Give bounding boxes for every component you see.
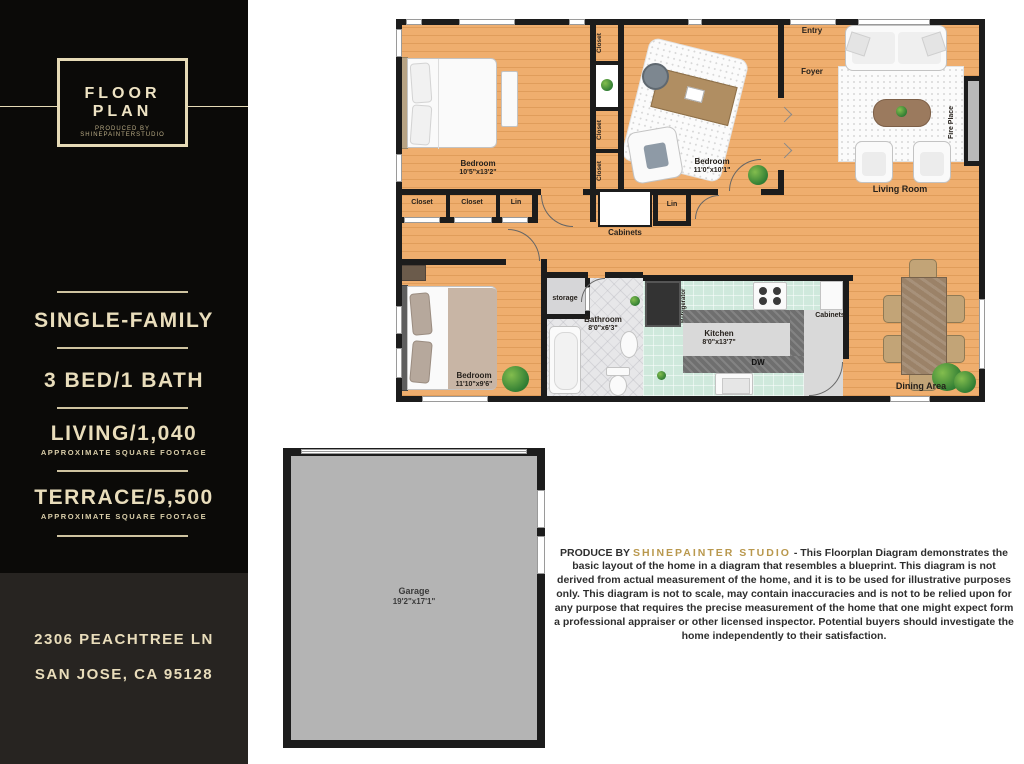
- window: [396, 306, 402, 334]
- window: [569, 19, 585, 25]
- room-name: Bathroom: [563, 315, 643, 325]
- living-room-label: Living Room: [830, 184, 970, 195]
- room-name: Bedroom: [668, 157, 756, 167]
- logo-line-right: [188, 106, 248, 107]
- main-floor-plan: Refrigerator Fire Place: [396, 19, 985, 402]
- window: [396, 29, 402, 57]
- armchair: [913, 141, 951, 183]
- armchair-cushion: [862, 152, 886, 176]
- bench: [501, 71, 518, 127]
- dishwasher-label: DW: [746, 358, 770, 368]
- dining-area-label: Dining Area: [861, 381, 981, 392]
- divider: [57, 535, 188, 537]
- closet-label-vertical: Closet: [596, 111, 618, 149]
- wall: [283, 740, 545, 748]
- fact-bed-bath: 3 BED/1 BATH: [0, 369, 248, 393]
- logo-subtitle: PRODUCED BY SHINEPAINTERSTUDIO: [60, 126, 185, 138]
- door-arc: [508, 229, 540, 261]
- bathroom-plant: [630, 296, 640, 306]
- desk-chair: [642, 63, 669, 90]
- fact-property-type: SINGLE-FAMILY: [0, 309, 248, 333]
- door-arc: [541, 195, 573, 227]
- wall: [778, 170, 784, 195]
- burner: [759, 297, 767, 305]
- bathtub: [549, 326, 581, 394]
- bed: [407, 58, 497, 148]
- burner: [773, 287, 781, 295]
- foyer-label: Foyer: [788, 67, 836, 77]
- disclaimer-body: - This Floorplan Diagram demonstrates th…: [554, 547, 1014, 643]
- armchair-cushion: [643, 142, 669, 169]
- closet-label: Closet: [400, 199, 444, 208]
- room-dims: 10'5"x13'2": [433, 169, 523, 178]
- garage-plan: Garage 19'2"x17'1": [283, 448, 545, 748]
- kitchen-plant: [657, 371, 666, 380]
- dresser: [400, 265, 426, 281]
- burner: [773, 297, 781, 305]
- window: [858, 19, 930, 25]
- pillow: [410, 62, 433, 103]
- wall: [643, 275, 853, 281]
- closet-door: [502, 217, 528, 223]
- divider: [57, 407, 188, 409]
- closet-label: Closet: [450, 199, 494, 208]
- divider: [57, 347, 188, 349]
- wall: [283, 448, 291, 748]
- burner: [759, 287, 767, 295]
- toilet-bowl: [609, 375, 627, 396]
- wall: [396, 259, 506, 265]
- kitchen-label: Kitchen 8'0"x13'7": [669, 329, 769, 348]
- window: [422, 396, 488, 402]
- bedroom2-armchair: [626, 125, 684, 185]
- page: FLOOR PLAN PRODUCED BY SHINEPAINTERSTUDI…: [0, 0, 1024, 764]
- window: [459, 19, 515, 25]
- dining-table: [901, 277, 947, 375]
- kitchen-cabinets-label: Cabinets: [800, 312, 860, 321]
- wall: [396, 189, 541, 195]
- room-dims: 11'10"x9'6": [429, 381, 519, 390]
- room-dims: 19'2"x17'1": [364, 597, 464, 607]
- armchair: [855, 141, 893, 183]
- laptop: [684, 86, 705, 103]
- window: [406, 19, 422, 25]
- entry-label: Entry: [790, 26, 834, 36]
- wall: [778, 19, 784, 98]
- kitchen-sink-island: [715, 373, 753, 395]
- upper-cabinet: [820, 281, 843, 310]
- garage-label: Garage 19'2"x17'1": [364, 586, 464, 607]
- room-name: Bedroom: [429, 371, 519, 381]
- disclaimer-studio-name: SHINEPAINTER STUDIO: [633, 547, 791, 559]
- room-name: Kitchen: [669, 329, 769, 339]
- fact-living-area-note: APPROXIMATE SQUARE FOOTAGE: [0, 448, 248, 457]
- bedroom1-label: Bedroom 10'5"x13'2": [433, 159, 523, 178]
- address-city: SAN JOSE, CA 95128: [0, 666, 248, 683]
- sofa: [845, 25, 947, 71]
- entry-door-opening: [790, 19, 836, 25]
- room-dims: 8'0"x13'7": [669, 339, 769, 348]
- window: [396, 154, 402, 182]
- bathroom-label: Bathroom 8'0"x6'3": [563, 315, 643, 334]
- bifold-door: [777, 107, 793, 123]
- armchair-cushion: [920, 152, 944, 176]
- room-dims: 8'0"x6'3": [563, 325, 643, 334]
- nook-plant: [601, 79, 613, 91]
- fact-terrace-area-note: APPROXIMATE SQUARE FOOTAGE: [0, 512, 248, 521]
- refrigerator: [645, 281, 681, 327]
- closet-label-vertical: Closet: [596, 25, 618, 61]
- duvet-fold: [438, 59, 439, 149]
- window: [979, 299, 985, 369]
- kitchen-counter-top: [683, 310, 804, 323]
- wall: [541, 259, 547, 396]
- bathroom-sink: [620, 331, 638, 358]
- divider: [57, 470, 188, 472]
- bedroom3-label: Bedroom 11'10"x9'6": [429, 371, 519, 390]
- closet-door: [454, 217, 492, 223]
- room-dims: 11'0"x10'1": [668, 167, 756, 176]
- logo-frame: FLOOR PLAN PRODUCED BY SHINEPAINTERSTUDI…: [57, 58, 188, 147]
- logo-title: FLOOR PLAN: [60, 85, 185, 121]
- sidebar: FLOOR PLAN PRODUCED BY SHINEPAINTERSTUDI…: [0, 0, 248, 764]
- disclaimer: PRODUCE BY SHINEPAINTER STUDIO - This Fl…: [554, 547, 1014, 645]
- wall: [541, 272, 588, 278]
- room-name: Bedroom: [433, 159, 523, 169]
- bedroom2-label: Bedroom 11'0"x10'1": [668, 157, 756, 176]
- stove: [753, 282, 787, 310]
- wall: [605, 272, 643, 278]
- fact-living-area: LIVING/1,040: [0, 422, 248, 446]
- storage-label: storage: [545, 295, 585, 304]
- fact-terrace-area: TERRACE/5,500: [0, 486, 248, 510]
- window: [890, 396, 930, 402]
- pillow: [410, 104, 433, 145]
- pillow: [409, 292, 433, 336]
- closet-label-vertical: Closet: [596, 153, 618, 189]
- hall-cabinets: [598, 190, 652, 227]
- hall-cabinets-label: Cabinets: [585, 228, 665, 238]
- divider: [57, 291, 188, 293]
- window: [688, 19, 702, 25]
- garage-side-door: [537, 536, 545, 574]
- address-street: 2306 PEACHTREE LN: [0, 631, 248, 648]
- kitchen-counter-bottom: [683, 356, 804, 373]
- sink-basin: [722, 378, 750, 394]
- disclaimer-prefix: PRODUCE BY: [560, 547, 630, 559]
- bathtub-basin: [554, 332, 578, 390]
- room-name: Garage: [364, 586, 464, 597]
- bifold-door: [777, 143, 793, 159]
- wall: [532, 195, 538, 219]
- closet-door: [404, 217, 440, 223]
- fireplace-label: Fire Place: [948, 93, 960, 151]
- door-arc: [695, 195, 719, 219]
- wall: [396, 19, 402, 402]
- lin-label: Lin: [653, 201, 691, 210]
- window: [396, 348, 402, 378]
- coffee-table-plant: [896, 106, 907, 117]
- garage-door-line: [301, 451, 527, 452]
- lin-label: Lin: [500, 199, 532, 208]
- logo-line-left: [0, 106, 57, 107]
- garage-side-door: [537, 490, 545, 528]
